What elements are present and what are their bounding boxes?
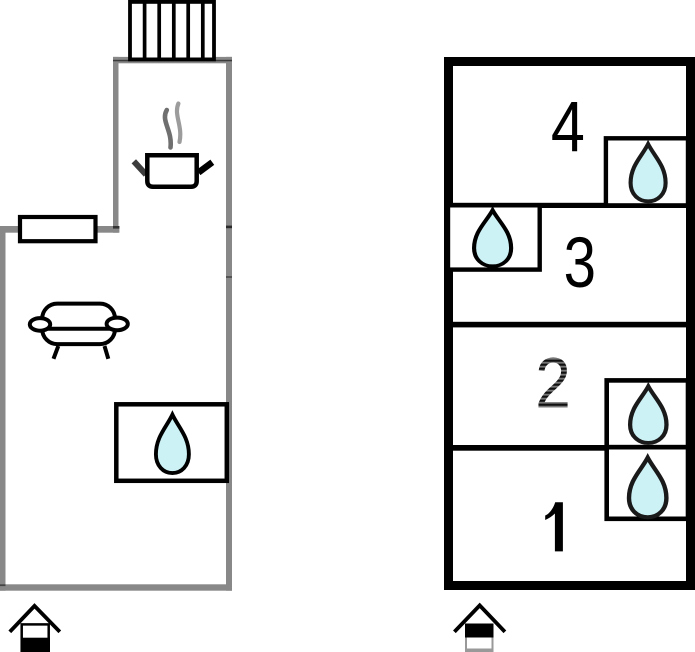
svg-text:4: 4	[551, 88, 585, 167]
svg-text:2: 2	[535, 345, 571, 424]
svg-text:3: 3	[564, 223, 596, 303]
